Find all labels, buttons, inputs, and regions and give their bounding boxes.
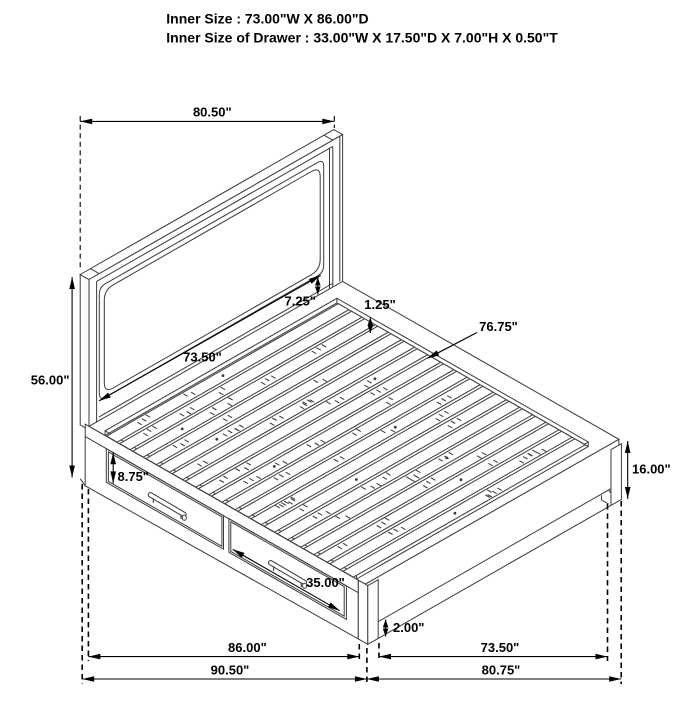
- svg-text:16.00": 16.00": [632, 462, 671, 477]
- svg-text:56.00": 56.00": [31, 373, 70, 388]
- svg-text:8.75": 8.75": [118, 469, 149, 484]
- svg-text:90.50": 90.50": [211, 663, 250, 678]
- svg-text:1.25": 1.25": [364, 297, 395, 312]
- svg-text:7.25": 7.25": [285, 294, 316, 309]
- svg-text:35.00": 35.00": [306, 575, 345, 590]
- svg-text:73.50": 73.50": [481, 640, 520, 655]
- svg-text:86.00": 86.00": [228, 640, 267, 655]
- svg-text:80.50": 80.50": [193, 105, 232, 120]
- svg-text:2.00": 2.00": [393, 620, 424, 635]
- svg-text:Inner Size of Drawer : 33.00"W: Inner Size of Drawer : 33.00"W X 17.50"D…: [166, 30, 558, 46]
- svg-text:80.75": 80.75": [482, 663, 521, 678]
- svg-text:76.75": 76.75": [479, 319, 518, 334]
- svg-text:73.50": 73.50": [183, 350, 222, 365]
- svg-text:Inner Size : 73.00"W X 86.00"D: Inner Size : 73.00"W X 86.00"D: [166, 11, 368, 27]
